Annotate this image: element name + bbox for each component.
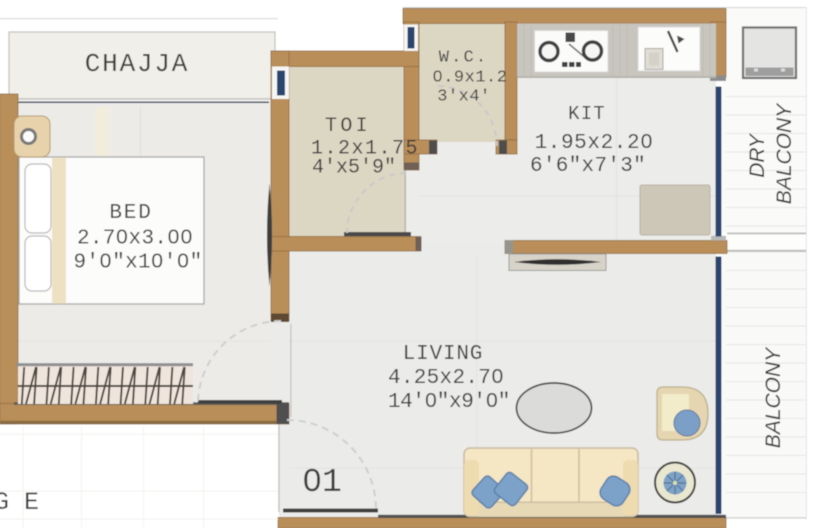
svg-text:G E: G E <box>0 488 39 517</box>
svg-text:TOI: TOI <box>325 115 371 138</box>
svg-text:BALCONY: BALCONY <box>773 102 796 204</box>
svg-text:KIT: KIT <box>568 103 606 125</box>
svg-text:BALCONY: BALCONY <box>762 346 785 448</box>
svg-text:LIVING: LIVING <box>403 343 483 366</box>
svg-text:01: 01 <box>302 464 342 501</box>
svg-text:W.C.: W.C. <box>439 49 489 68</box>
svg-text:6'6"x7'3": 6'6"x7'3" <box>530 155 646 178</box>
svg-text:CHAJJA: CHAJJA <box>85 49 189 79</box>
svg-text:4.25x2.70: 4.25x2.70 <box>388 367 504 390</box>
svg-text:4'x5'9": 4'x5'9" <box>312 157 396 180</box>
svg-text:0.9x1.2: 0.9x1.2 <box>433 69 508 88</box>
svg-text:3'x4': 3'x4' <box>437 88 491 107</box>
svg-text:1.95x2.20: 1.95x2.20 <box>535 132 654 155</box>
svg-text:DRY: DRY <box>746 132 769 178</box>
svg-text:BED: BED <box>109 202 152 225</box>
